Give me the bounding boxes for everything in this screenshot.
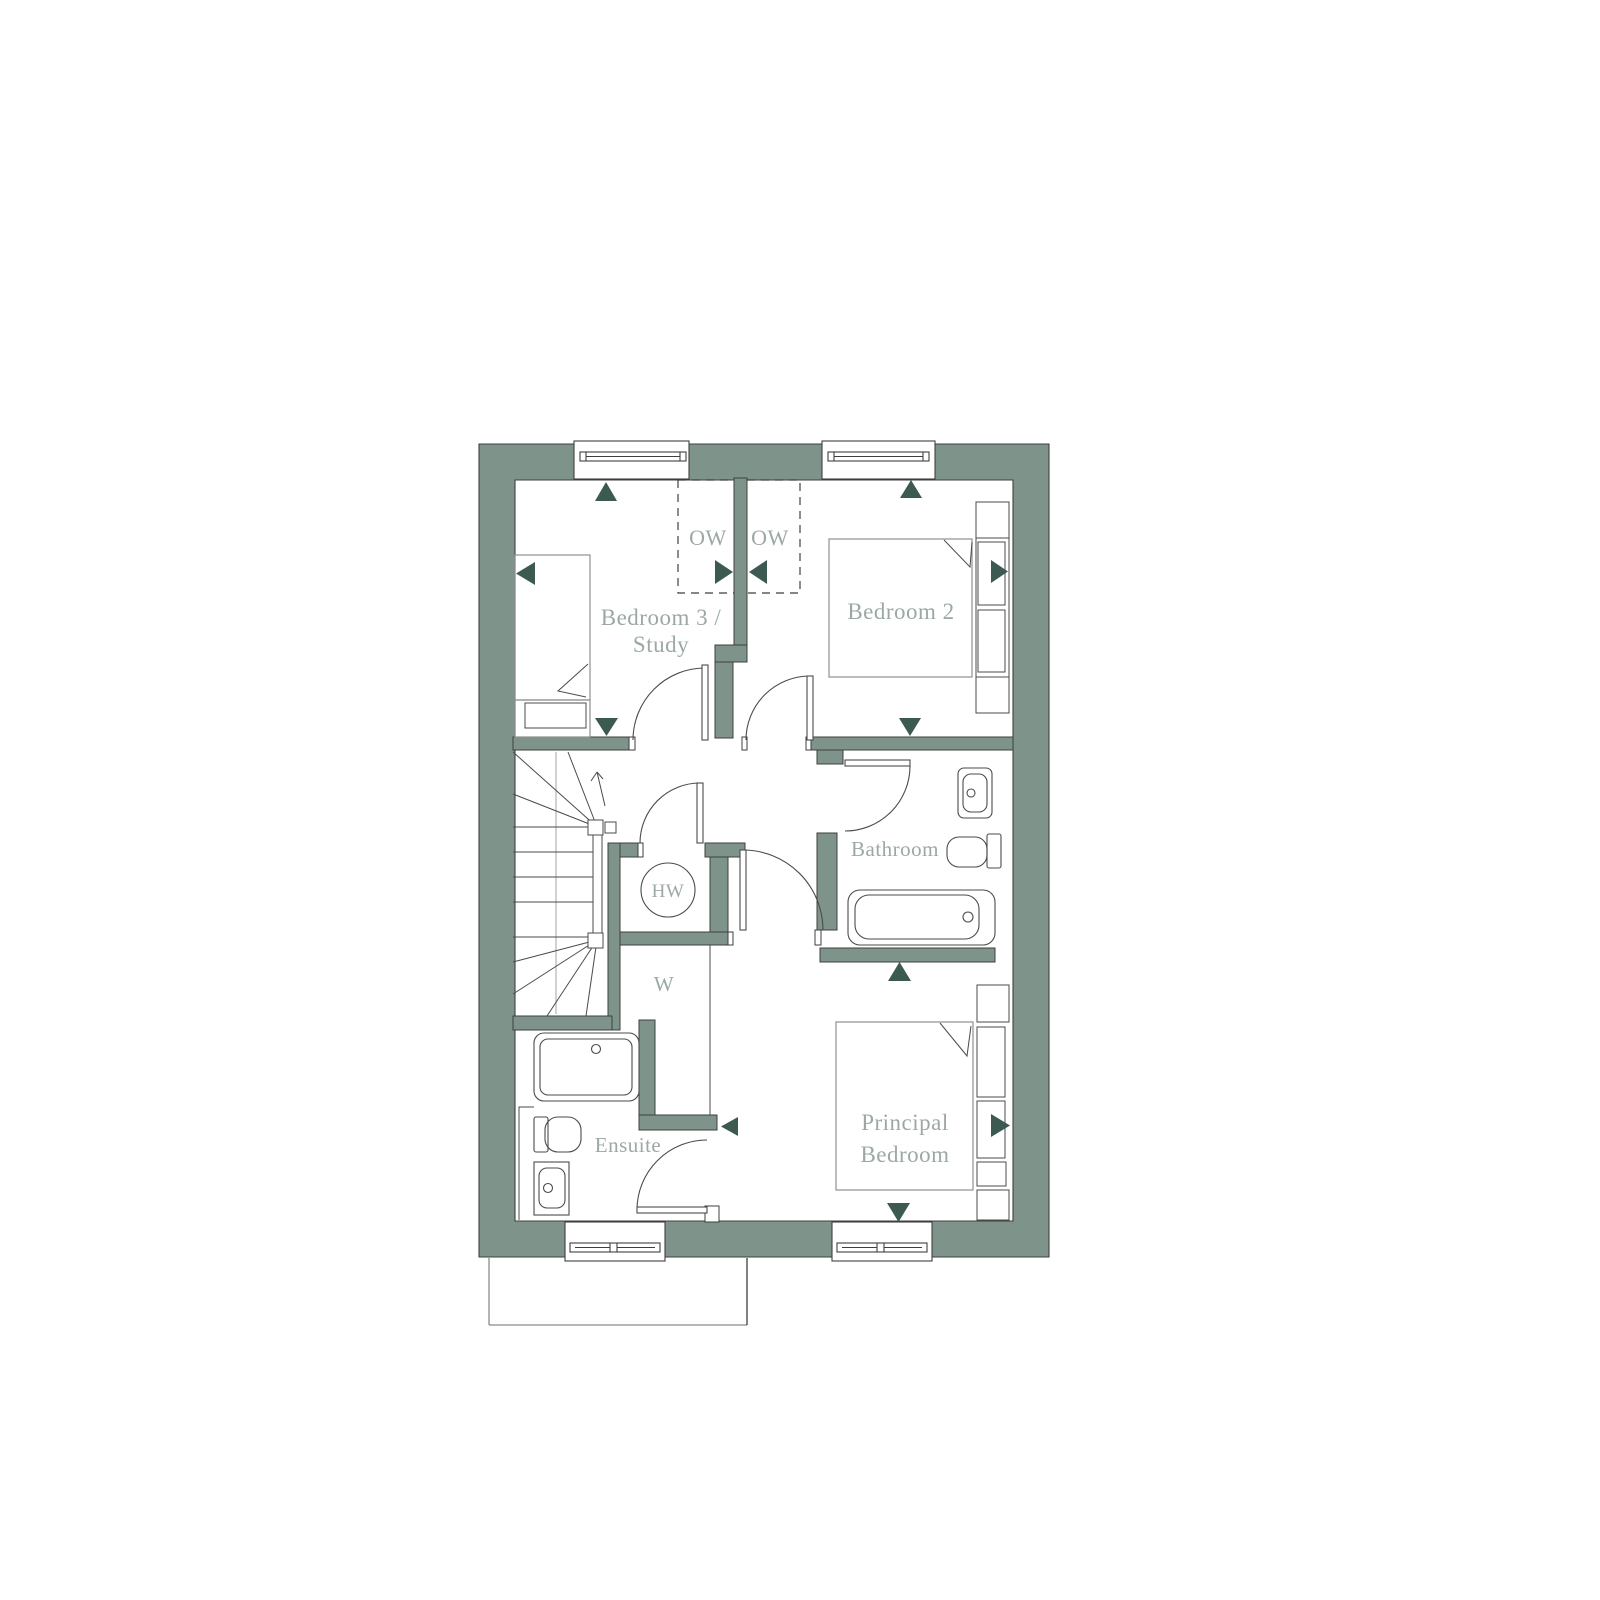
newel-post-top	[588, 820, 603, 835]
arrow-left-ensuite-icon	[721, 1117, 738, 1136]
label-wardrobe: W	[654, 972, 674, 996]
wall-shower-right	[639, 1020, 655, 1115]
bed3-foot-box-inner	[525, 703, 586, 728]
floor-plan-svg: Bedroom 3 / Study Bedroom 2 OW OW Bathro…	[0, 0, 1600, 1600]
wall-ensuite-top	[639, 1115, 717, 1130]
door-bathroom	[845, 760, 910, 831]
stair-direction-arrow-icon	[591, 772, 605, 806]
staircase	[513, 752, 616, 1016]
arrow-up-principal-icon	[888, 962, 911, 981]
ensuite-wall-lining	[519, 1107, 534, 1220]
label-ow-right: OW	[751, 525, 789, 550]
wall-landing-right	[808, 737, 1013, 750]
arrow-down-bedroom2-icon	[899, 718, 921, 736]
window-bedroom2	[822, 441, 935, 479]
jamb-principal-right	[815, 930, 821, 945]
arrow-up-bedroom3-icon	[595, 482, 617, 501]
wardrobe-principal	[977, 985, 1009, 1220]
wall-partition-upper	[734, 478, 747, 645]
wall-hw-bottom	[620, 932, 728, 945]
wall-stairs-bottom	[513, 1016, 612, 1030]
arrow-left-bedroom3-icon	[516, 562, 535, 585]
bathroom-toilet	[947, 834, 1001, 868]
arrow-left-ow-right-icon	[749, 560, 767, 584]
label-bathroom: Bathroom	[851, 837, 939, 861]
jamb-bed3-left	[629, 737, 635, 750]
wall-bathroom-bottom	[820, 948, 995, 962]
ensuite-toilet	[534, 1117, 581, 1152]
wall-partition-jog	[715, 645, 747, 662]
newel-post-mid	[605, 822, 616, 833]
window-bedroom3	[574, 441, 689, 479]
door-bedroom2	[746, 676, 813, 740]
jamb-hw-left	[638, 843, 643, 857]
label-ensuite: Ensuite	[595, 1133, 662, 1157]
wall-bathroom-left	[817, 833, 837, 930]
arrow-right-principal-icon	[991, 1114, 1010, 1137]
door-principal-bedroom	[740, 850, 823, 930]
door-hw-cupboard	[640, 783, 703, 843]
label-bedroom3-line2: Study	[633, 632, 689, 657]
window-principal	[832, 1222, 932, 1261]
label-bedroom3-line1: Bedroom 3 /	[601, 605, 722, 630]
ensuite-sink	[534, 1162, 569, 1215]
label-hot-water: HW	[652, 881, 685, 902]
wall-bathroom-stub	[817, 750, 843, 764]
bathroom-sink	[958, 768, 992, 818]
door-bedroom3	[633, 665, 708, 740]
ensuite-shower	[534, 1033, 639, 1101]
label-ow-left: OW	[689, 525, 727, 550]
newel-post-bottom	[588, 933, 603, 948]
wall-landing-left	[513, 737, 635, 750]
wardrobe-bedroom2	[976, 502, 1009, 713]
arrow-down-principal-icon	[887, 1203, 910, 1222]
arrow-right-ow-left-icon	[715, 560, 733, 584]
wall-partition-lower	[715, 662, 733, 738]
floor-plan-page: Bedroom 3 / Study Bedroom 2 OW OW Bathro…	[0, 0, 1600, 1600]
lower-footprint-outline	[489, 1258, 747, 1325]
bed-single-bedroom3	[515, 555, 590, 737]
window-ensuite	[565, 1222, 665, 1261]
jamb-principal-left	[728, 932, 733, 945]
wall-hw-left	[608, 843, 620, 1030]
label-bedroom2: Bedroom 2	[847, 599, 954, 624]
arrow-down-bedroom3-icon	[595, 718, 618, 736]
bathroom-bath	[848, 890, 995, 945]
arrow-up-bedroom2-icon	[900, 480, 922, 498]
label-principal-line1: Principal	[861, 1110, 949, 1135]
label-principal-line2: Bedroom	[860, 1142, 949, 1167]
bed3-foot-box	[515, 700, 590, 737]
wall-hw-top-right	[705, 843, 745, 857]
